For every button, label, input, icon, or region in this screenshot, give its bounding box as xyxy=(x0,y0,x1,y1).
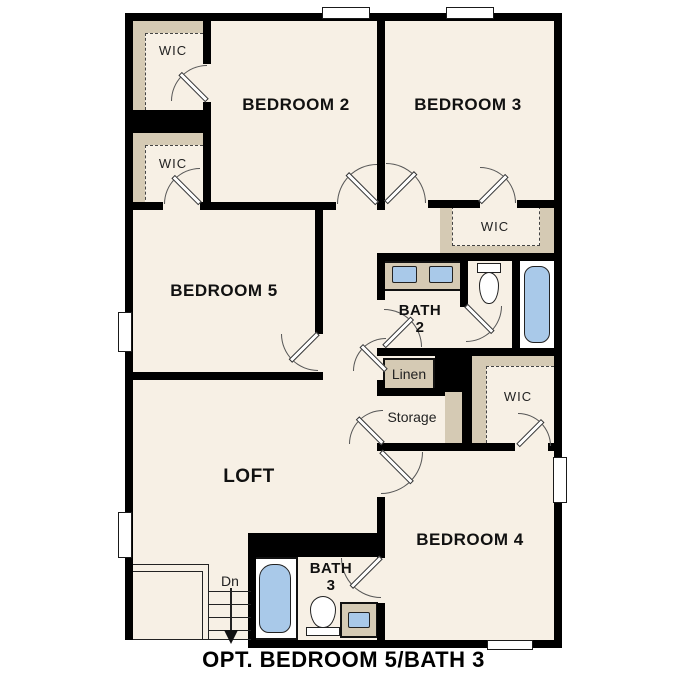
bath2-sink-right xyxy=(429,266,453,283)
label-linen: Linen xyxy=(385,365,433,383)
wall xyxy=(462,352,472,443)
label-loft: LOFT xyxy=(199,465,299,489)
wall-bed5-right xyxy=(315,202,323,334)
bath3-tub xyxy=(259,564,291,633)
label-stairs-dn: Dn xyxy=(212,572,248,590)
wall xyxy=(428,200,480,208)
window xyxy=(553,457,567,503)
floor-plan: WIC WIC BEDROOM 2 BEDROOM 3 WIC BEDROOM … xyxy=(0,0,687,687)
window xyxy=(322,7,370,19)
bath3-toilet-tank xyxy=(306,627,340,636)
label-bath2-line1: BATH xyxy=(399,302,442,319)
label-bedroom2: BEDROOM 2 xyxy=(226,94,366,116)
stair-landing-line xyxy=(202,571,203,640)
storage-shelf xyxy=(445,392,462,443)
wall xyxy=(377,261,385,300)
label-bedroom4: BEDROOM 4 xyxy=(400,529,540,551)
label-storage: Storage xyxy=(382,408,442,426)
label-bedroom3: BEDROOM 3 xyxy=(398,94,538,116)
label-wic-bed3: WIC xyxy=(472,218,518,234)
wall xyxy=(460,261,468,307)
wall-bed5-bottom xyxy=(133,372,323,380)
label-bedroom5: BEDROOM 5 xyxy=(154,280,294,302)
wall xyxy=(203,21,211,64)
stair-landing-line xyxy=(133,564,209,565)
wall-outer-right xyxy=(554,13,562,648)
label-bath2-line2: 2 xyxy=(416,319,425,336)
wall xyxy=(517,200,554,208)
label-wic1: WIC xyxy=(150,42,196,58)
label-bath3: BATH 3 xyxy=(302,558,360,596)
label-bath3-line2: 3 xyxy=(327,577,336,594)
wall-closet-band xyxy=(133,110,211,133)
window xyxy=(118,312,132,352)
wall-bath3-top xyxy=(248,533,385,557)
stair-down-arrow-head xyxy=(224,630,238,644)
label-bath3-line1: BATH xyxy=(310,560,353,577)
stair-landing-line xyxy=(133,571,203,572)
label-wic2: WIC xyxy=(150,155,196,171)
stair-down-arrow-shaft xyxy=(230,588,232,632)
window xyxy=(446,7,494,19)
wall-bath3-left xyxy=(248,557,256,640)
bath2-sink-left xyxy=(392,266,417,283)
wall xyxy=(377,603,385,640)
wall xyxy=(377,443,515,451)
plan-caption: OPT. BEDROOM 5/BATH 3 xyxy=(0,647,687,673)
bath2-tub xyxy=(524,266,550,343)
bath3-sink xyxy=(348,612,370,628)
window xyxy=(118,512,132,558)
wall-bath2-top xyxy=(377,253,554,261)
label-bath2: BATH 2 xyxy=(393,300,447,338)
stair-landing-line xyxy=(208,564,209,640)
wall-bed2-bed3-divider xyxy=(377,21,385,210)
wall xyxy=(512,261,520,348)
label-wic-bed4: WIC xyxy=(495,388,541,404)
wall-storage-top xyxy=(377,388,445,396)
wall xyxy=(133,202,163,210)
